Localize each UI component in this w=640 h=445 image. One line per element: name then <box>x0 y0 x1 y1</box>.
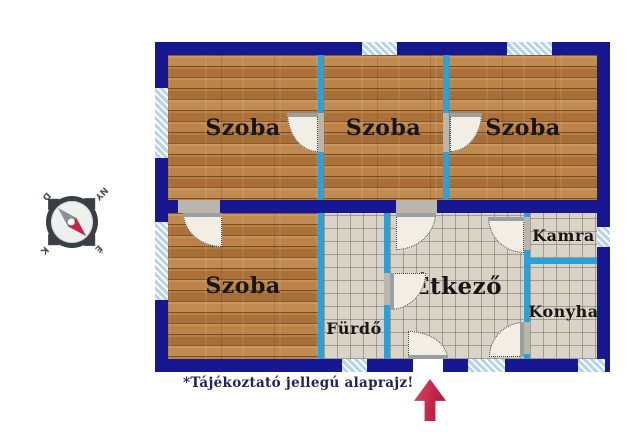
door-gap <box>318 113 324 152</box>
door-leaf <box>396 213 436 217</box>
door-leaf <box>390 273 394 310</box>
room-label: Szoba <box>346 117 421 139</box>
door-gap <box>443 113 449 152</box>
room-kamra: Kamra <box>530 213 597 258</box>
room-konyha: Konyha <box>530 264 597 359</box>
entrance-arrow-icon <box>414 379 446 421</box>
door-gap <box>524 322 530 354</box>
window-hatch <box>468 359 505 372</box>
room-furdo: Fürdő <box>324 213 384 359</box>
floor-plan-page: É K D NY Szoba Szoba Szoba Szoba Fürdő É… <box>0 0 640 445</box>
door-gap <box>178 200 220 213</box>
door-leaf <box>408 355 448 359</box>
door-leaf <box>520 322 524 357</box>
door-gap <box>524 217 530 250</box>
door-leaf <box>287 113 318 117</box>
room-label: Szoba <box>205 117 280 139</box>
door-leaf <box>183 213 222 217</box>
compass-rose: É K D NY <box>18 168 125 275</box>
floor-plan: Szoba Szoba Szoba Szoba Fürdő Étkező Kam… <box>155 42 610 372</box>
window-hatch <box>342 359 367 372</box>
room-label: Fürdő <box>326 321 382 359</box>
compass-label-north: É <box>92 242 103 253</box>
door-gap <box>396 200 437 213</box>
room-label: Szoba <box>485 117 560 139</box>
room-szoba-2: Szoba <box>324 55 443 200</box>
window-hatch <box>155 88 168 158</box>
room-label: Konyha <box>528 304 598 320</box>
window-hatch <box>362 42 397 55</box>
disclaimer-note: *Tájékoztató jellegú alaprajz! <box>183 375 414 391</box>
window-hatch <box>507 42 552 55</box>
door-leaf <box>450 113 482 117</box>
compass-label-east: K <box>38 244 50 256</box>
window-hatch <box>155 222 168 300</box>
room-label: Kamra <box>532 228 595 244</box>
entrance-door-gap <box>413 359 443 372</box>
window-hatch <box>578 359 605 372</box>
room-szoba-4: Szoba <box>168 213 318 359</box>
window-hatch <box>597 227 610 247</box>
door-leaf <box>488 217 524 221</box>
room-label: Szoba <box>205 275 280 297</box>
